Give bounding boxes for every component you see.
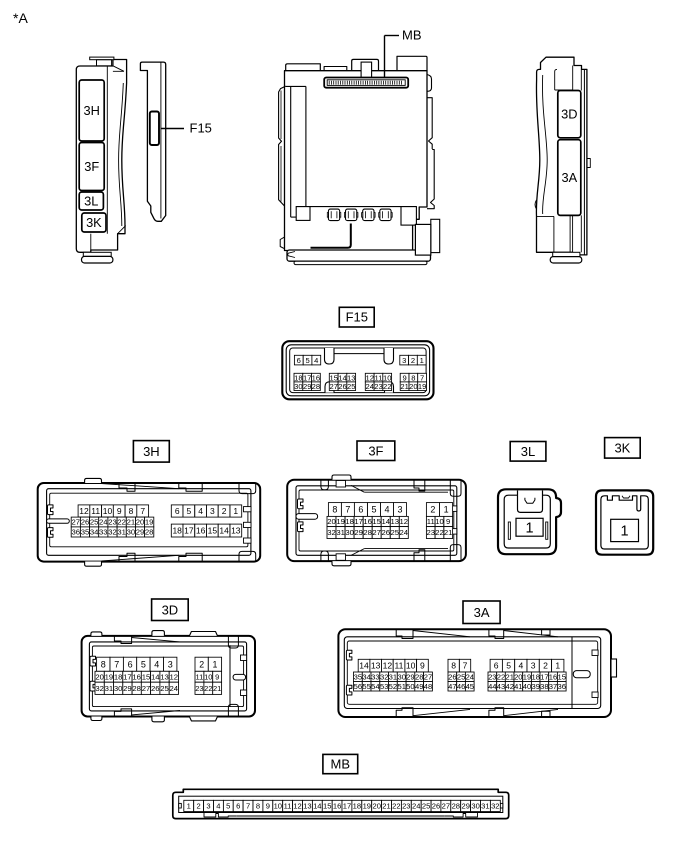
svg-text:28: 28 (312, 382, 320, 391)
svg-text:23: 23 (488, 672, 496, 681)
svg-text:14: 14 (359, 661, 369, 671)
svg-text:36: 36 (557, 682, 565, 691)
svg-text:5: 5 (305, 356, 309, 365)
svg-text:25: 25 (422, 802, 430, 811)
svg-text:11: 11 (395, 661, 404, 671)
svg-text:3: 3 (206, 802, 210, 811)
svg-text:31: 31 (117, 528, 126, 537)
svg-text:3A: 3A (561, 170, 577, 185)
svg-text:29: 29 (136, 528, 145, 537)
svg-text:31: 31 (105, 684, 114, 693)
svg-text:11: 11 (91, 506, 100, 516)
svg-text:10: 10 (204, 672, 212, 681)
svg-text:44: 44 (488, 682, 496, 691)
svg-text:9: 9 (117, 506, 122, 516)
svg-text:15: 15 (372, 517, 381, 526)
svg-text:8: 8 (451, 661, 456, 671)
svg-text:17: 17 (343, 802, 351, 811)
svg-text:3: 3 (168, 659, 173, 669)
svg-text:52: 52 (389, 682, 397, 691)
svg-text:33: 33 (371, 672, 379, 681)
svg-text:6: 6 (128, 659, 133, 669)
svg-text:6: 6 (297, 356, 301, 365)
svg-text:25: 25 (391, 528, 400, 537)
svg-text:14: 14 (313, 802, 321, 811)
svg-text:8: 8 (129, 506, 134, 516)
svg-text:30: 30 (294, 382, 302, 391)
svg-text:7: 7 (114, 659, 119, 669)
svg-text:13: 13 (303, 802, 311, 811)
svg-text:42: 42 (505, 682, 513, 691)
svg-text:5: 5 (506, 661, 511, 671)
svg-text:17: 17 (184, 526, 194, 536)
svg-text:24: 24 (412, 802, 420, 811)
svg-text:8: 8 (332, 505, 337, 515)
svg-text:3F: 3F (84, 159, 99, 174)
svg-text:31: 31 (336, 528, 345, 537)
svg-text:24: 24 (365, 382, 373, 391)
svg-text:16: 16 (549, 672, 557, 681)
svg-text:24: 24 (400, 528, 409, 537)
svg-text:9: 9 (215, 672, 219, 681)
svg-text:4: 4 (314, 356, 318, 365)
svg-text:20: 20 (409, 382, 417, 391)
svg-text:1: 1 (555, 661, 560, 671)
svg-text:15: 15 (142, 672, 151, 681)
svg-text:3H: 3H (143, 444, 160, 459)
svg-text:21: 21 (127, 518, 136, 527)
svg-text:2: 2 (543, 661, 548, 671)
svg-text:26: 26 (382, 528, 391, 537)
svg-text:2: 2 (199, 659, 204, 669)
svg-text:3H: 3H (84, 103, 100, 118)
svg-text:23: 23 (108, 518, 117, 527)
svg-text:33: 33 (99, 528, 108, 537)
svg-text:40: 40 (523, 682, 531, 691)
svg-text:11: 11 (284, 802, 292, 811)
svg-text:27: 27 (142, 684, 151, 693)
svg-text:22: 22 (497, 672, 505, 681)
svg-text:10: 10 (406, 661, 416, 671)
svg-text:22: 22 (204, 684, 212, 693)
svg-text:26: 26 (151, 684, 160, 693)
svg-text:29: 29 (123, 684, 132, 693)
svg-text:15: 15 (208, 526, 218, 536)
svg-text:5: 5 (187, 506, 192, 516)
svg-text:20: 20 (327, 517, 336, 526)
svg-text:3F: 3F (368, 443, 383, 458)
svg-text:10: 10 (435, 517, 444, 526)
svg-text:6: 6 (358, 505, 363, 515)
svg-text:25: 25 (457, 672, 465, 681)
svg-text:4: 4 (154, 659, 159, 669)
svg-text:19: 19 (363, 802, 371, 811)
svg-text:39: 39 (531, 682, 539, 691)
svg-text:MB: MB (331, 757, 351, 772)
svg-text:3L: 3L (521, 444, 535, 459)
svg-text:F15: F15 (346, 310, 368, 325)
svg-text:4: 4 (198, 506, 203, 516)
svg-text:15: 15 (323, 802, 331, 811)
svg-text:20: 20 (514, 672, 522, 681)
svg-text:18: 18 (345, 517, 354, 526)
svg-text:14: 14 (382, 517, 391, 526)
svg-text:20: 20 (372, 802, 380, 811)
svg-text:13: 13 (160, 672, 169, 681)
svg-text:55: 55 (362, 682, 370, 691)
svg-text:54: 54 (371, 682, 379, 691)
svg-text:3: 3 (531, 661, 536, 671)
svg-text:12: 12 (383, 661, 393, 671)
svg-text:24: 24 (466, 672, 474, 681)
svg-text:13: 13 (231, 526, 241, 536)
svg-text:18: 18 (531, 672, 539, 681)
svg-text:1: 1 (621, 524, 629, 540)
svg-text:14: 14 (219, 526, 229, 536)
svg-text:43: 43 (497, 682, 505, 691)
svg-text:25: 25 (90, 518, 99, 527)
svg-text:26: 26 (81, 518, 90, 527)
svg-text:11: 11 (427, 517, 435, 526)
svg-text:9: 9 (266, 802, 270, 811)
svg-text:23: 23 (402, 802, 410, 811)
svg-text:18: 18 (114, 672, 123, 681)
svg-text:32: 32 (108, 528, 117, 537)
svg-text:22: 22 (392, 802, 400, 811)
svg-text:18: 18 (172, 526, 182, 536)
svg-text:3: 3 (402, 356, 406, 365)
svg-text:53: 53 (380, 682, 388, 691)
svg-text:50: 50 (406, 682, 414, 691)
svg-text:16: 16 (333, 802, 341, 811)
svg-text:13: 13 (371, 661, 381, 671)
svg-text:19: 19 (105, 672, 114, 681)
svg-text:21: 21 (382, 802, 390, 811)
svg-text:24: 24 (99, 518, 108, 527)
svg-text:1: 1 (187, 802, 191, 811)
svg-text:18: 18 (353, 802, 361, 811)
svg-text:28: 28 (452, 802, 460, 811)
svg-text:12: 12 (79, 506, 89, 516)
svg-text:7: 7 (345, 505, 350, 515)
svg-text:3: 3 (397, 505, 402, 515)
svg-text:21: 21 (505, 672, 513, 681)
svg-text:29: 29 (461, 802, 469, 811)
svg-text:2: 2 (411, 356, 415, 365)
svg-text:38: 38 (540, 682, 548, 691)
svg-text:30: 30 (397, 672, 405, 681)
svg-text:46: 46 (457, 682, 465, 691)
svg-text:7: 7 (140, 506, 145, 516)
svg-text:2: 2 (430, 505, 435, 515)
svg-text:1: 1 (420, 356, 424, 365)
svg-text:13: 13 (391, 517, 400, 526)
svg-text:3K: 3K (86, 215, 102, 230)
svg-text:2: 2 (196, 802, 200, 811)
svg-text:MB: MB (402, 28, 422, 43)
svg-text:20: 20 (95, 672, 104, 681)
svg-text:30: 30 (345, 528, 354, 537)
svg-text:34: 34 (90, 528, 99, 537)
svg-text:56: 56 (354, 682, 362, 691)
svg-text:16: 16 (132, 672, 141, 681)
svg-text:1: 1 (213, 659, 218, 669)
svg-text:48: 48 (424, 682, 432, 691)
svg-text:24: 24 (170, 684, 179, 693)
svg-text:27: 27 (424, 672, 432, 681)
svg-text:35: 35 (354, 672, 362, 681)
svg-text:15: 15 (557, 672, 565, 681)
svg-text:20: 20 (136, 518, 145, 527)
svg-text:17: 17 (354, 517, 363, 526)
svg-text:5: 5 (141, 659, 146, 669)
svg-text:27: 27 (442, 802, 450, 811)
svg-text:23: 23 (374, 382, 382, 391)
svg-text:6: 6 (494, 661, 499, 671)
svg-text:26: 26 (432, 802, 440, 811)
svg-text:30: 30 (471, 802, 479, 811)
svg-text:27: 27 (372, 528, 381, 537)
svg-text:32: 32 (95, 684, 104, 693)
svg-text:32: 32 (380, 672, 388, 681)
svg-text:F15: F15 (190, 120, 212, 135)
svg-text:17: 17 (540, 672, 548, 681)
svg-text:36: 36 (72, 528, 81, 537)
svg-text:28: 28 (145, 528, 154, 537)
svg-text:12: 12 (400, 517, 409, 526)
svg-text:9: 9 (446, 517, 450, 526)
svg-text:10: 10 (103, 506, 113, 516)
svg-text:17: 17 (123, 672, 132, 681)
svg-text:32: 32 (491, 802, 499, 811)
svg-text:25: 25 (160, 684, 169, 693)
svg-text:8: 8 (101, 659, 106, 669)
svg-text:30: 30 (127, 528, 136, 537)
svg-text:3D: 3D (561, 107, 577, 122)
svg-text:31: 31 (389, 672, 397, 681)
svg-text:19: 19 (336, 517, 345, 526)
svg-text:26: 26 (448, 672, 456, 681)
svg-text:22: 22 (117, 518, 126, 527)
svg-text:31: 31 (481, 802, 489, 811)
svg-text:23: 23 (195, 684, 203, 693)
svg-text:6: 6 (175, 506, 180, 516)
svg-text:19: 19 (523, 672, 531, 681)
svg-text:3A: 3A (474, 605, 490, 620)
svg-text:2: 2 (222, 506, 227, 516)
svg-text:26: 26 (338, 382, 346, 391)
svg-text:6: 6 (236, 802, 240, 811)
svg-text:21: 21 (213, 684, 221, 693)
svg-text:34: 34 (362, 672, 370, 681)
svg-text:10: 10 (274, 802, 282, 811)
svg-text:1: 1 (233, 506, 238, 516)
svg-text:3K: 3K (614, 440, 630, 455)
svg-text:22: 22 (383, 382, 391, 391)
svg-text:3D: 3D (162, 602, 179, 617)
svg-text:29: 29 (303, 382, 311, 391)
svg-text:19: 19 (418, 382, 426, 391)
svg-text:16: 16 (363, 517, 372, 526)
svg-text:28: 28 (415, 672, 423, 681)
svg-text:1: 1 (525, 520, 533, 536)
svg-text:49: 49 (415, 682, 423, 691)
svg-text:51: 51 (397, 682, 405, 691)
svg-text:3L: 3L (84, 194, 98, 209)
svg-text:21: 21 (400, 382, 408, 391)
svg-text:25: 25 (347, 382, 355, 391)
svg-text:*A: *A (13, 10, 28, 26)
svg-text:45: 45 (466, 682, 474, 691)
svg-text:12: 12 (293, 802, 301, 811)
svg-text:35: 35 (81, 528, 90, 537)
svg-text:4: 4 (216, 802, 220, 811)
svg-text:23: 23 (427, 528, 436, 537)
svg-text:12: 12 (170, 672, 179, 681)
svg-text:9: 9 (420, 661, 425, 671)
svg-text:11: 11 (196, 672, 204, 681)
svg-text:22: 22 (435, 528, 444, 537)
svg-text:29: 29 (354, 528, 363, 537)
svg-text:28: 28 (132, 684, 141, 693)
svg-text:41: 41 (514, 682, 522, 691)
svg-text:4: 4 (384, 505, 389, 515)
svg-text:8: 8 (256, 802, 260, 811)
svg-text:32: 32 (327, 528, 336, 537)
svg-text:16: 16 (196, 526, 206, 536)
svg-text:1: 1 (444, 505, 449, 515)
svg-text:37: 37 (549, 682, 557, 691)
svg-text:47: 47 (448, 682, 456, 691)
svg-text:5: 5 (371, 505, 376, 515)
svg-text:30: 30 (114, 684, 123, 693)
svg-text:29: 29 (406, 672, 414, 681)
svg-text:21: 21 (444, 528, 453, 537)
svg-text:7: 7 (463, 661, 468, 671)
svg-text:7: 7 (246, 802, 250, 811)
svg-text:4: 4 (519, 661, 524, 671)
svg-text:19: 19 (145, 518, 154, 527)
svg-text:27: 27 (329, 382, 337, 391)
svg-text:27: 27 (72, 518, 81, 527)
svg-text:3: 3 (210, 506, 215, 516)
svg-text:28: 28 (363, 528, 372, 537)
svg-text:5: 5 (226, 802, 230, 811)
svg-text:14: 14 (151, 672, 160, 681)
